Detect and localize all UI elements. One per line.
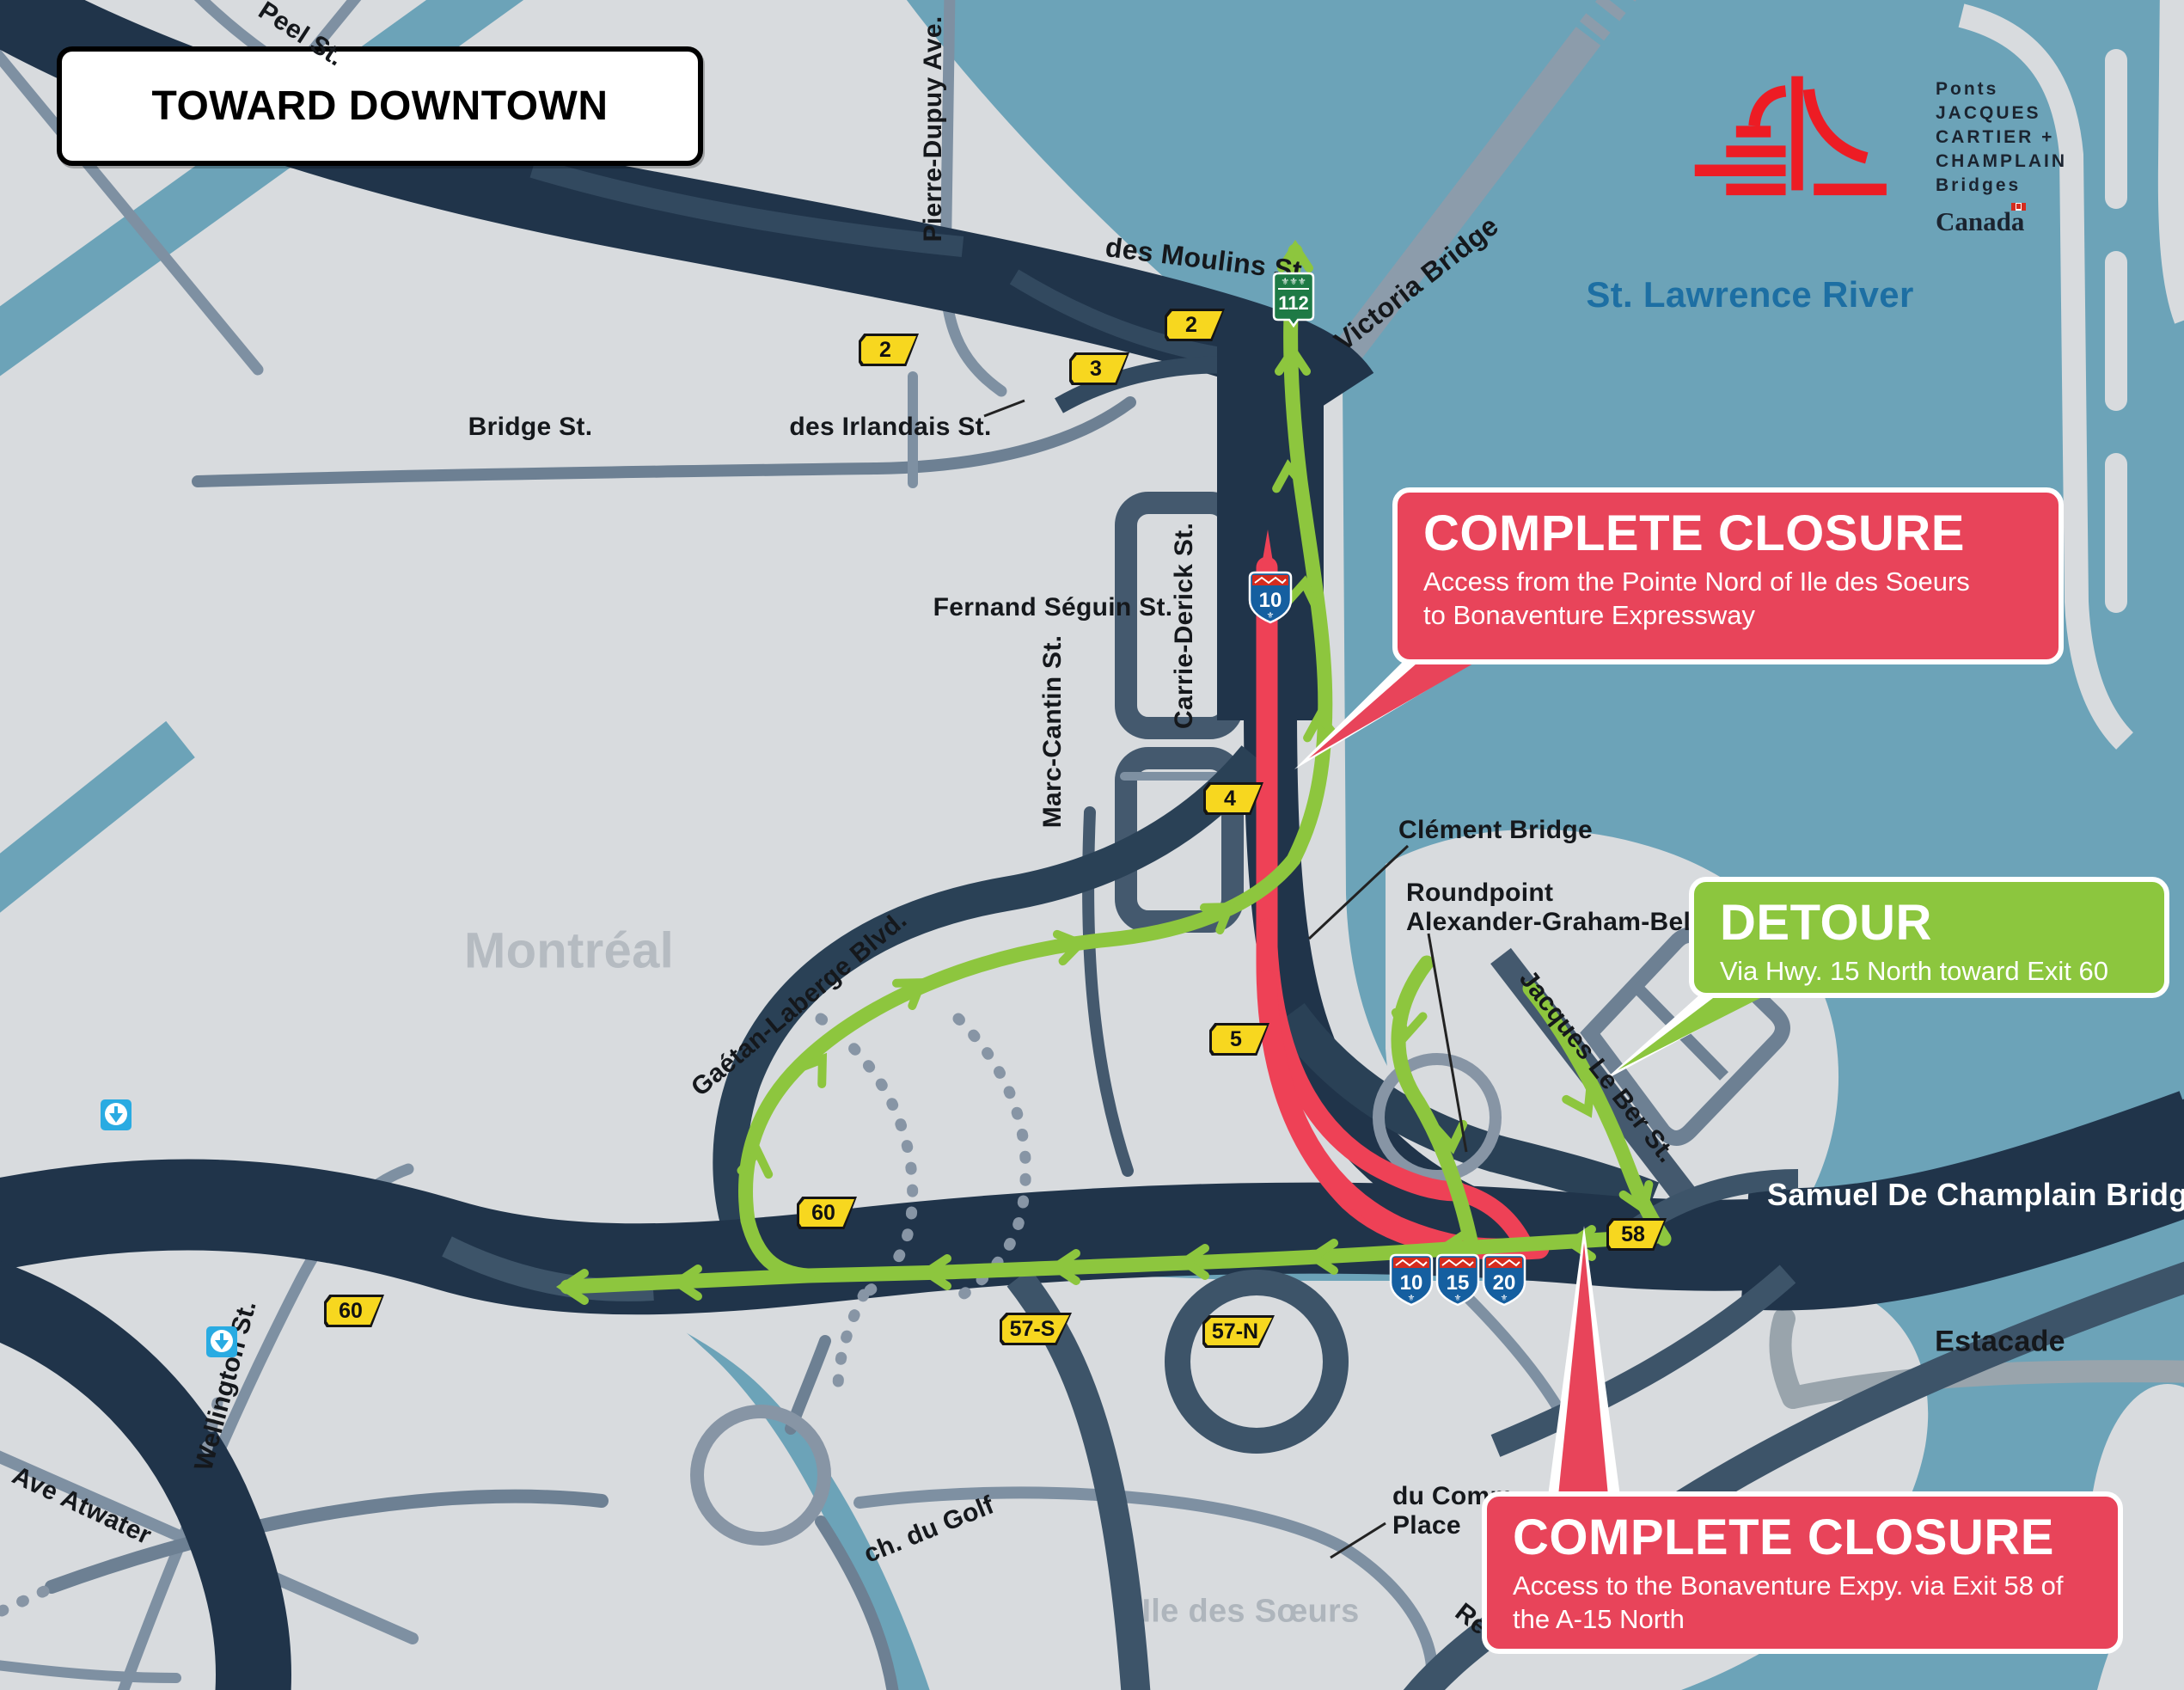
island-label-ile-des-soeurs: Ile des Sœurs bbox=[1141, 1594, 1359, 1631]
exit-marker-57s: 57-S bbox=[1000, 1313, 1072, 1345]
callout-title: COMPLETE CLOSURE bbox=[1423, 508, 2034, 560]
logo-line-bridges: Bridges bbox=[1936, 174, 2094, 198]
autoroute-shield-20: 20⚜ bbox=[1482, 1253, 1526, 1307]
exit-marker-2b: 2 bbox=[1165, 309, 1225, 341]
direction-banner: TOWARD DOWNTOWN bbox=[57, 46, 703, 166]
svg-text:⚜⚜⚜: ⚜⚜⚜ bbox=[1281, 277, 1306, 287]
exit-marker-58: 58 bbox=[1606, 1218, 1667, 1251]
callout-complete-closure-top: COMPLETE CLOSURE Access from the Pointe … bbox=[1392, 487, 2064, 664]
autoroute-shield-10: 10⚜ bbox=[1389, 1253, 1434, 1307]
exit-marker-60b: 60 bbox=[797, 1197, 857, 1229]
exit-marker-5: 5 bbox=[1209, 1023, 1269, 1056]
label-estacade: Estacade bbox=[1935, 1326, 2065, 1359]
svg-text:112: 112 bbox=[1278, 292, 1309, 314]
street-label-clement-bridge: Clément Bridge bbox=[1398, 816, 1593, 845]
bridge-label-samuel-de-champlain: Samuel De Champlain Bridge bbox=[1767, 1177, 2184, 1213]
direction-banner-label: TOWARD DOWNTOWN bbox=[152, 83, 609, 130]
route-shield-112: ⚜⚜⚜112 bbox=[1270, 271, 1317, 329]
svg-text:⚜: ⚜ bbox=[1408, 1294, 1416, 1303]
map-canvas bbox=[0, 0, 2184, 1690]
metro-station-icon bbox=[101, 1099, 132, 1130]
callout-complete-closure-bottom: COMPLETE CLOSURE Access to the Bonaventu… bbox=[1482, 1491, 2123, 1654]
callout-detour: DETOUR Via Hwy. 15 North toward Exit 60 bbox=[1689, 877, 2169, 998]
svg-text:⚜: ⚜ bbox=[1267, 611, 1275, 621]
logo-line-ponts: Ponts bbox=[1936, 77, 2094, 101]
street-label-pierre-dupuy: Pierre-Dupuy Ave. bbox=[919, 16, 948, 242]
street-label-roundpoint: Roundpoint Alexander-Graham-Bell bbox=[1406, 879, 1698, 937]
river-label: St. Lawrence River bbox=[1586, 274, 1913, 315]
logo-line-jacques-cartier: JACQUES CARTIER + bbox=[1936, 101, 2094, 150]
autoroute-shield-10-top: 10⚜ bbox=[1248, 571, 1293, 624]
street-label-fernand-seguin: Fernand Séguin St. bbox=[933, 593, 1173, 622]
street-label-carrie-derick: Carrie-Derick St. bbox=[1170, 523, 1199, 729]
exit-marker-2a: 2 bbox=[859, 334, 919, 366]
street-label-bridge: Bridge St. bbox=[468, 413, 593, 442]
exit-marker-4: 4 bbox=[1203, 782, 1263, 815]
svg-text:10: 10 bbox=[1400, 1271, 1423, 1295]
callout-body: Via Hwy. 15 North toward Exit 60 bbox=[1720, 955, 2140, 989]
svg-text:15: 15 bbox=[1447, 1271, 1470, 1295]
logo-line-champlain: CHAMPLAIN bbox=[1936, 150, 2094, 174]
svg-text:10: 10 bbox=[1259, 589, 1282, 612]
canada-flag-icon bbox=[2011, 203, 2026, 211]
road-closure-map: TOWARD DOWNTOWN Ponts JACQUES CARTIER + … bbox=[0, 0, 2184, 1690]
autoroute-shield-15: 15⚜ bbox=[1435, 1253, 1480, 1307]
callout-body: Access to the Bonaventure Expy. via Exit… bbox=[1513, 1570, 2094, 1637]
exit-marker-60a: 60 bbox=[324, 1295, 384, 1327]
bridges-corporation-logo: Ponts JACQUES CARTIER + CHAMPLAIN Bridge… bbox=[1690, 52, 2094, 223]
callout-title: DETOUR bbox=[1720, 897, 2140, 950]
callout-title: COMPLETE CLOSURE bbox=[1513, 1512, 2094, 1564]
svg-text:⚜: ⚜ bbox=[1501, 1294, 1508, 1303]
street-label-marc-cantin: Marc-Cantin St. bbox=[1038, 635, 1068, 829]
exit-marker-3: 3 bbox=[1069, 352, 1129, 385]
city-label-montreal: Montréal bbox=[464, 922, 674, 980]
exit-marker-57n: 57-N bbox=[1202, 1315, 1275, 1348]
metro-station-icon bbox=[206, 1326, 237, 1357]
svg-text:20: 20 bbox=[1493, 1271, 1516, 1295]
bridge-logo-icon bbox=[1690, 69, 1905, 198]
street-label-des-irlandais: des Irlandais St. bbox=[789, 413, 991, 442]
callout-body: Access from the Pointe Nord of Ile des S… bbox=[1423, 566, 2034, 633]
svg-text:⚜: ⚜ bbox=[1454, 1294, 1462, 1303]
canada-wordmark: Canada bbox=[1936, 206, 2024, 237]
